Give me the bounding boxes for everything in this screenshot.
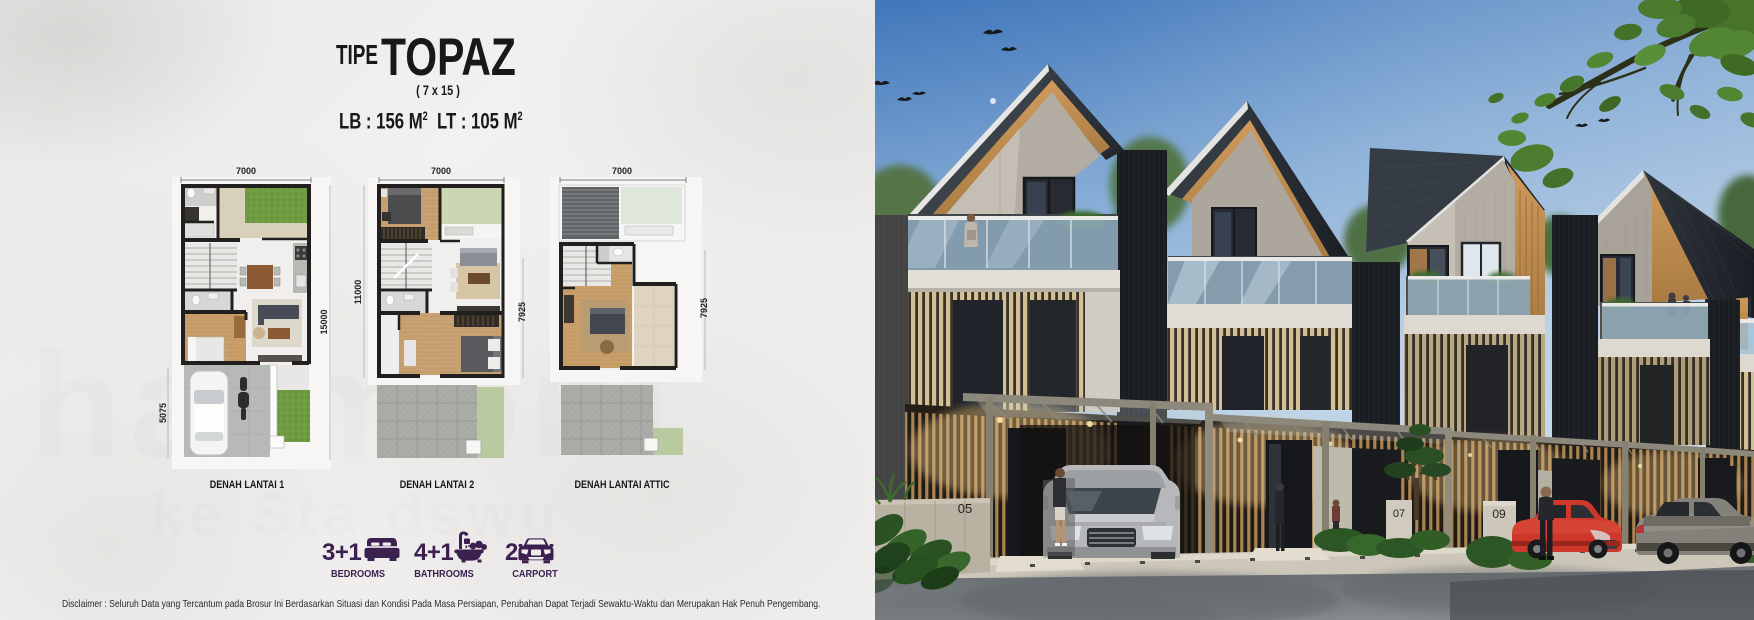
- svg-text:4+1: 4+1: [414, 539, 453, 566]
- svg-text:3+1: 3+1: [322, 539, 361, 566]
- svg-text:07: 07: [1393, 508, 1405, 520]
- svg-text:BEDROOMS: BEDROOMS: [331, 569, 386, 580]
- svg-text:5075: 5075: [158, 403, 168, 423]
- svg-text:7000: 7000: [236, 166, 256, 176]
- svg-text:15000: 15000: [319, 309, 329, 334]
- svg-text:7925: 7925: [517, 302, 527, 322]
- svg-text:2: 2: [505, 539, 518, 566]
- svg-text:7925: 7925: [699, 298, 709, 318]
- svg-text:CARPORT: CARPORT: [512, 569, 558, 580]
- svg-text:BATHROOMS: BATHROOMS: [414, 569, 474, 580]
- svg-text:7000: 7000: [431, 166, 451, 176]
- svg-text:11000: 11000: [353, 280, 363, 305]
- svg-text:7000: 7000: [612, 166, 632, 176]
- svg-text:09: 09: [1492, 507, 1506, 521]
- svg-text:05: 05: [958, 501, 972, 516]
